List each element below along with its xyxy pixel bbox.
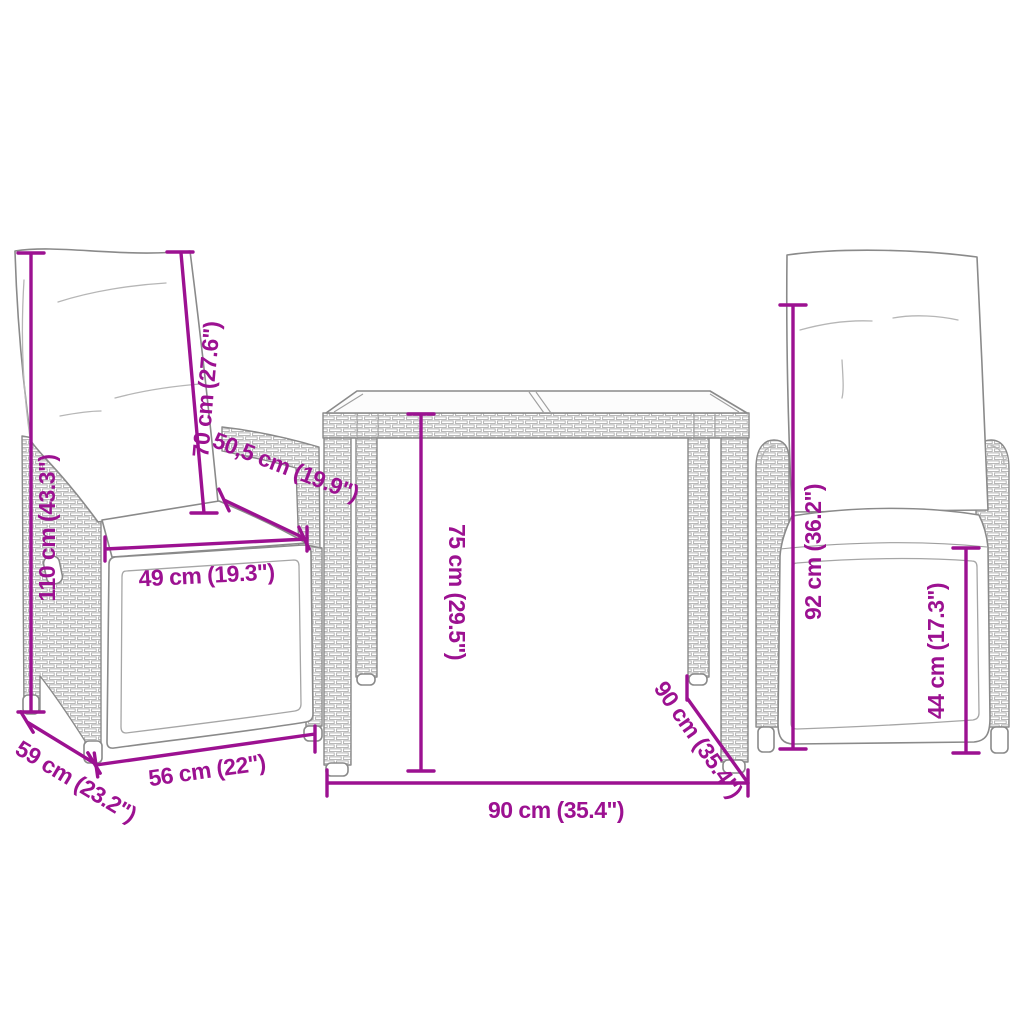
right-chair-backrest-cushion xyxy=(787,250,988,512)
table-apron xyxy=(323,413,749,438)
right-chair-foot-right xyxy=(991,727,1008,753)
label-left-chair-height: 110 cm (43.3") xyxy=(34,454,60,601)
table-foot-back-right xyxy=(689,674,707,685)
dim-line-table-width xyxy=(327,770,748,796)
table-leg-back-right xyxy=(688,437,709,677)
right-chair-foot-left xyxy=(758,727,774,752)
furniture-dimension-diagram: 110 cm (43.3") 70 cm (27.6") 50,5 cm (19… xyxy=(0,0,1024,1024)
label-left-chair-depth: 59 cm (23.2") xyxy=(11,735,141,827)
label-right-chair-height: 92 cm (36.2") xyxy=(800,484,826,620)
table-foot-front-left xyxy=(326,763,348,776)
table-leg-back-left xyxy=(356,437,377,677)
table-leg-front-right xyxy=(721,437,748,762)
label-table-height: 75 cm (29.5") xyxy=(444,524,470,660)
table-foot-back-left xyxy=(357,674,375,685)
left-chair xyxy=(15,249,322,763)
label-table-width: 90 cm (35.4") xyxy=(488,797,624,823)
dim-line-table-height xyxy=(408,414,434,771)
label-right-chair-seat-height: 44 cm (17.3") xyxy=(923,583,949,719)
